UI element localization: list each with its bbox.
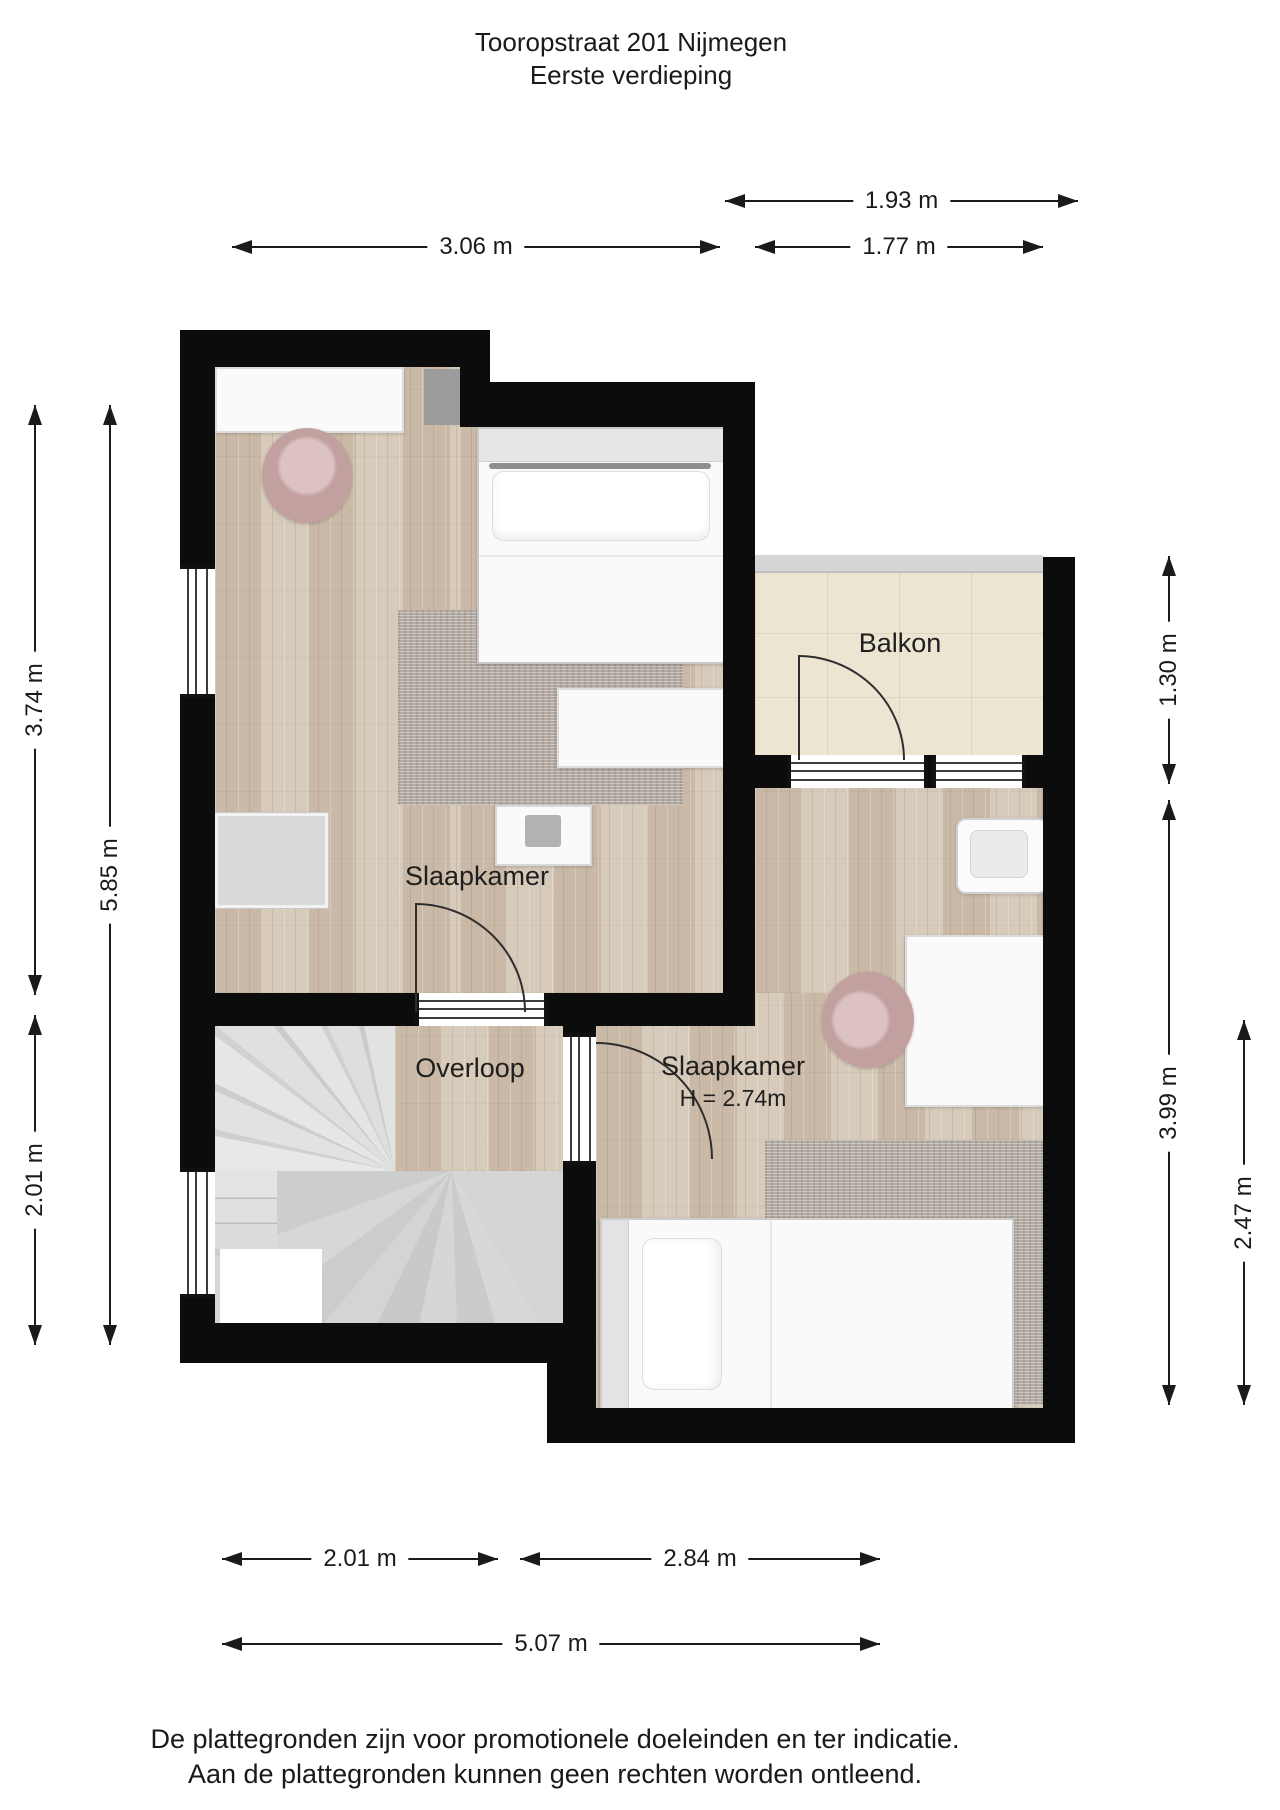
dresser-icon [557, 688, 727, 768]
stairs-void [220, 1249, 322, 1323]
plan-subtitle: Eerste verdieping [281, 59, 981, 92]
stairs-steps [215, 1171, 277, 1249]
dim-label: 1.77 m [850, 233, 947, 261]
balcony-window-icon [932, 755, 1026, 788]
plan-title-block: Tooropstraat 201 Nijmegen Eerste verdiep… [281, 26, 981, 92]
pillow [492, 471, 710, 541]
dim-label: 2.84 m [651, 1545, 748, 1573]
wall-bottom-left [180, 1323, 547, 1363]
dim-balcony-depth: 1.30 m [1168, 556, 1170, 784]
dim-total-width: 5.07 m [222, 1643, 880, 1645]
sink-basin [970, 830, 1028, 878]
window-icon-left-upper [180, 565, 215, 698]
wall-landing-vertical-top [563, 993, 596, 1033]
bed-shadow-line [489, 463, 711, 469]
dim-balcony-width: 1.93 m [725, 200, 1078, 202]
dim-label: 3.74 m [21, 651, 49, 748]
dim-balcony-inner-width: 1.77 m [755, 246, 1043, 248]
window-icon-left-lower [180, 1168, 215, 1298]
dim-landing-width: 2.01 m [222, 1558, 498, 1560]
room-label-bedroom-right: Slaapkamer H = 2.74m [603, 1051, 863, 1112]
sink-icon [956, 818, 1048, 894]
dim-bedroom-right-lower-depth: 2.47 m [1243, 1020, 1245, 1405]
room-label-bedroom-left: Slaapkamer [347, 861, 607, 892]
balcony-railing [755, 555, 1043, 573]
floor-plan: Tooropstraat 201 Nijmegen Eerste verdiep… [0, 0, 1280, 1810]
dim-label: 2.01 m [311, 1545, 408, 1573]
desk-icon [215, 367, 404, 433]
dim-label: 5.07 m [502, 1630, 599, 1658]
dim-label: 5.85 m [96, 826, 124, 923]
dim-landing-depth: 2.01 m [34, 1015, 36, 1345]
wall-bottom-right [547, 1408, 1075, 1443]
dim-left-side-total: 5.85 m [109, 405, 111, 1345]
pillow-right [642, 1238, 722, 1390]
wall-right [1043, 557, 1075, 1443]
dim-label: 2.01 m [21, 1131, 49, 1228]
wall-landing-left [215, 993, 415, 1026]
ceiling-height-note: H = 2.74m [603, 1085, 863, 1112]
dim-bedroom-left-depth: 3.74 m [34, 405, 36, 995]
dim-label: 1.30 m [1155, 621, 1183, 718]
dim-label: 3.06 m [427, 233, 524, 261]
bed-icon [477, 427, 727, 664]
nightstand-object [525, 815, 561, 847]
wall-balcony-stub-left [723, 755, 787, 788]
desk-icon-right [905, 935, 1047, 1107]
landing-floor [395, 1026, 563, 1171]
bed-headboard [479, 429, 725, 462]
closet-icon [215, 813, 328, 908]
chair-icon [262, 428, 352, 523]
nightstand-icon [495, 805, 592, 866]
dim-bedroom-left-width: 3.06 m [232, 246, 720, 248]
wall-top-right [460, 382, 755, 427]
disclaimer: De plattegronden zijn voor promotionele … [75, 1722, 1035, 1792]
room-label-balcony: Balkon [820, 628, 980, 659]
wall-top-left [180, 330, 490, 367]
dim-label: 3.99 m [1155, 1054, 1183, 1151]
disclaimer-line1: De plattegronden zijn voor promotionele … [75, 1722, 1035, 1757]
blanket-fold-right [770, 1220, 772, 1410]
disclaimer-line2: Aan de plattegronden kunnen geen rechten… [75, 1757, 1035, 1792]
dim-bedroom-right-depth: 3.99 m [1168, 800, 1170, 1405]
dim-bedroom-right-width: 2.84 m [520, 1558, 880, 1560]
bed-icon-right [600, 1218, 1014, 1412]
room-label-landing: Overloop [370, 1053, 570, 1084]
wall-landing-vertical-bottom [563, 1157, 596, 1408]
dim-label: 1.93 m [853, 187, 950, 215]
dim-label: 2.47 m [1230, 1164, 1258, 1261]
stairs-icon [215, 1026, 395, 1171]
wall-bedroom-divider [723, 382, 755, 993]
plan-title: Tooropstraat 201 Nijmegen [281, 26, 981, 59]
wall-step-block [424, 369, 464, 425]
bed-headboard-right [602, 1220, 629, 1410]
blanket-fold [479, 555, 725, 557]
